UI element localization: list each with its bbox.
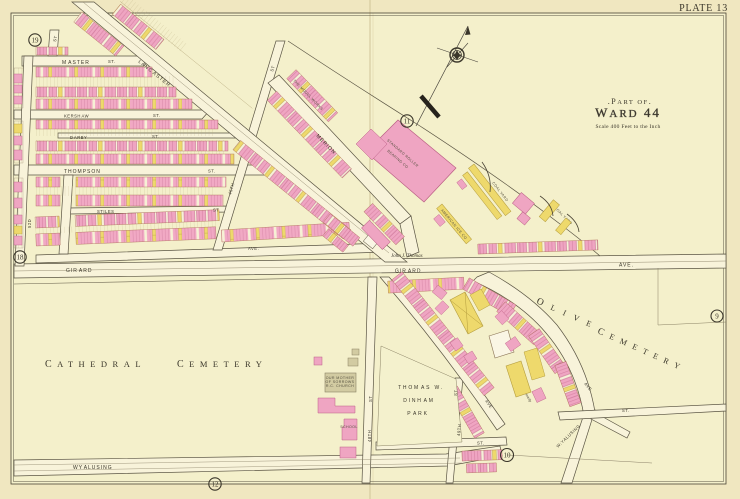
svg-text:10: 10 xyxy=(504,452,512,460)
svg-text:SCHOOL: SCHOOL xyxy=(340,425,358,429)
svg-text:PLATE 13: PLATE 13 xyxy=(679,3,728,14)
svg-text:GIRARD: GIRARD xyxy=(66,268,92,274)
svg-text:ST.: ST. xyxy=(622,408,630,413)
svg-text:John J. Thomas: John J. Thomas xyxy=(391,254,423,259)
svg-text:12: 12 xyxy=(212,481,220,489)
svg-text:ST: ST xyxy=(368,396,373,402)
svg-text:ST.: ST. xyxy=(108,59,116,64)
svg-text:18: 18 xyxy=(17,254,25,262)
svg-text:WARD 44: WARD 44 xyxy=(595,105,661,120)
svg-text:ST.: ST. xyxy=(153,113,161,118)
svg-text:19: 19 xyxy=(32,37,40,45)
svg-text:Scale 400 Feet to the Inch: Scale 400 Feet to the Inch xyxy=(595,124,660,130)
svg-text:ST: ST xyxy=(213,208,219,213)
svg-text:ST.: ST. xyxy=(208,169,216,174)
svg-text:ST.: ST. xyxy=(477,441,485,446)
svg-text:GIRARD: GIRARD xyxy=(395,269,421,275)
svg-text:DARBY: DARBY xyxy=(70,135,87,140)
svg-text:KERSHAW: KERSHAW xyxy=(64,114,89,119)
svg-text:STILES: STILES xyxy=(97,209,114,214)
svg-text:MASTER: MASTER xyxy=(62,60,90,66)
svg-text:CATHEDRAL: CATHEDRAL xyxy=(45,359,146,370)
svg-text:ST.: ST. xyxy=(152,134,160,139)
svg-text:11: 11 xyxy=(404,118,411,126)
svg-text:AVE.: AVE. xyxy=(619,263,634,269)
svg-text:AVE.: AVE. xyxy=(248,246,259,251)
svg-text:PARK: PARK xyxy=(407,411,428,417)
svg-text:THOMAS W.: THOMAS W. xyxy=(398,385,444,391)
svg-text:52D: 52D xyxy=(27,219,32,228)
svg-text:R.C. CHURCH: R.C. CHURCH xyxy=(326,384,354,388)
svg-text:CEMETERY: CEMETERY xyxy=(177,359,267,370)
svg-text:DINHAM: DINHAM xyxy=(403,398,435,404)
svg-text:THOMPSON: THOMPSON xyxy=(64,169,101,175)
svg-text:9: 9 xyxy=(715,313,719,321)
svg-text:WYALUSING: WYALUSING xyxy=(73,465,113,471)
svg-text:49TH: 49TH xyxy=(456,423,462,436)
svg-text:ST: ST xyxy=(453,389,459,396)
svg-text:48TH: 48TH xyxy=(367,430,372,442)
